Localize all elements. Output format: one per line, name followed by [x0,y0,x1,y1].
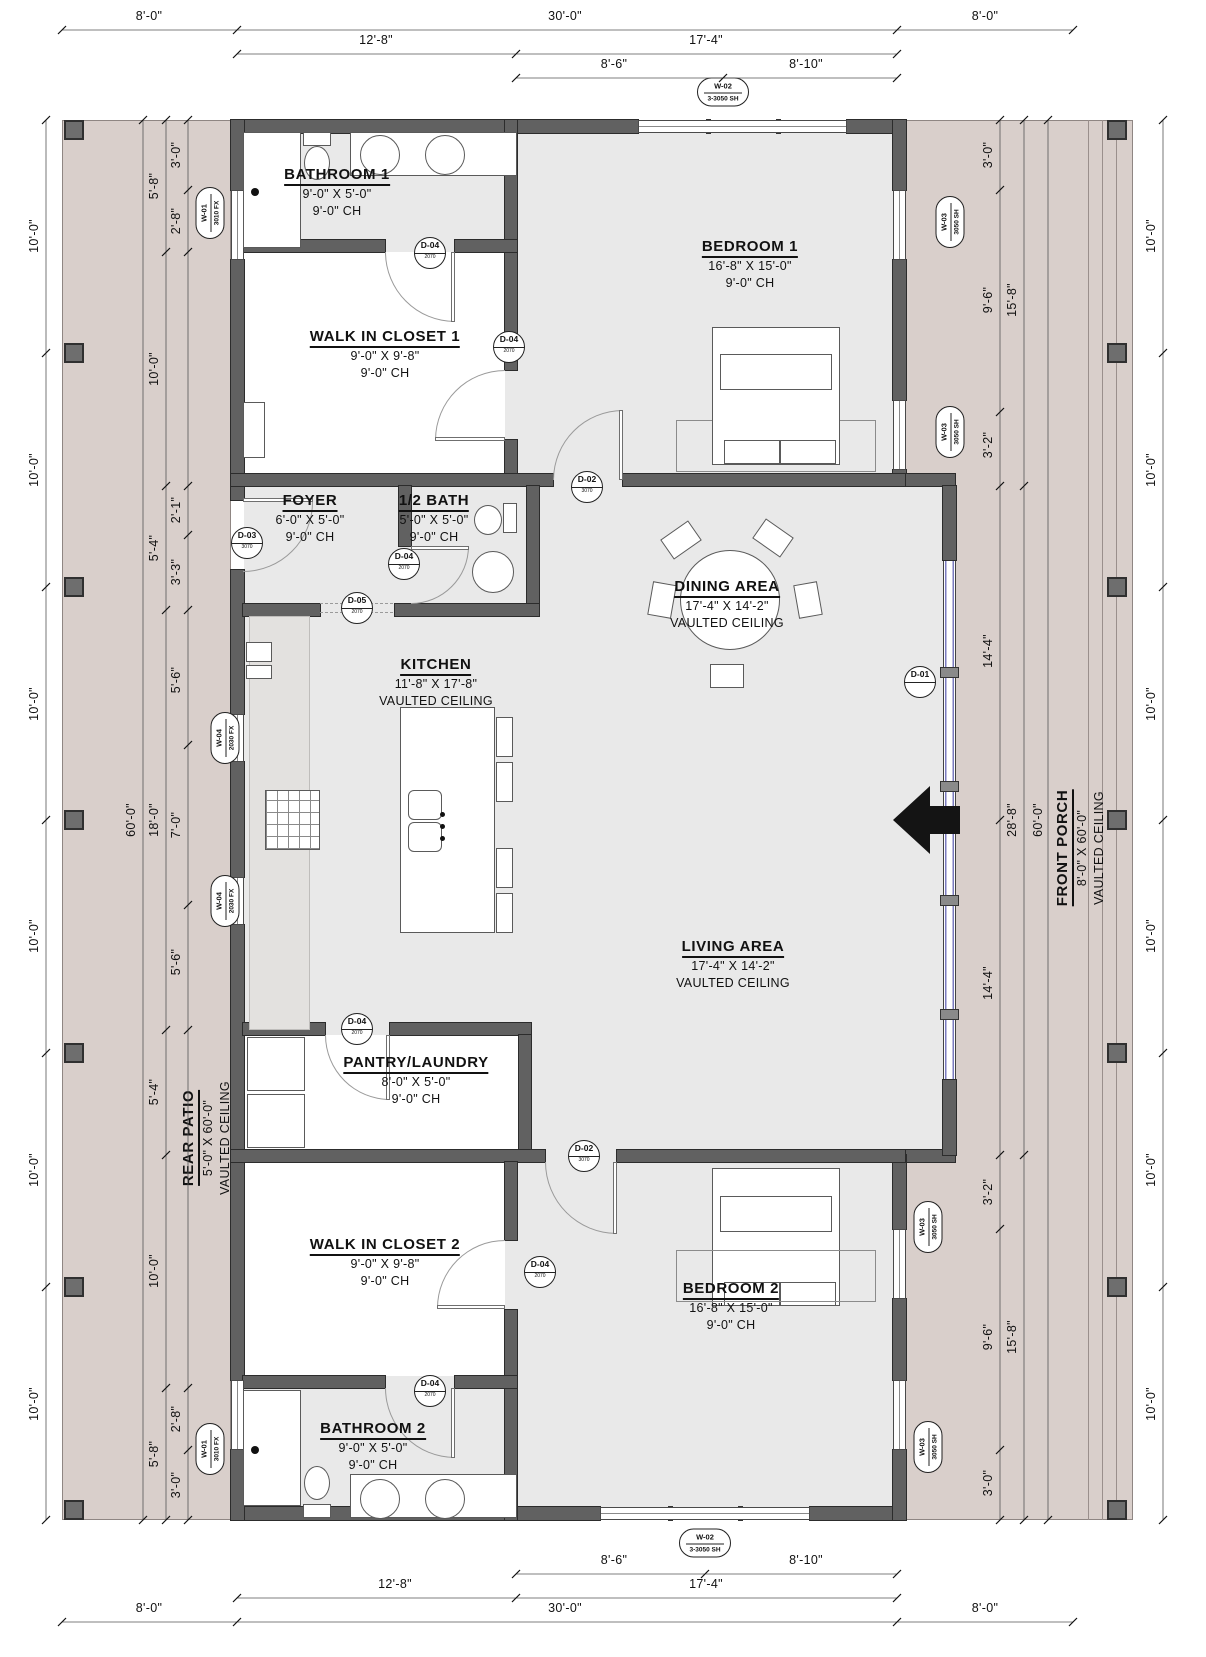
entry-arrow-icon [893,786,960,854]
dimension-lines-layer [0,0,1206,1657]
floor-plan: BATHROOM 1 9'-0" X 5'-0" 9'-0" CHWALK IN… [0,0,1206,1657]
